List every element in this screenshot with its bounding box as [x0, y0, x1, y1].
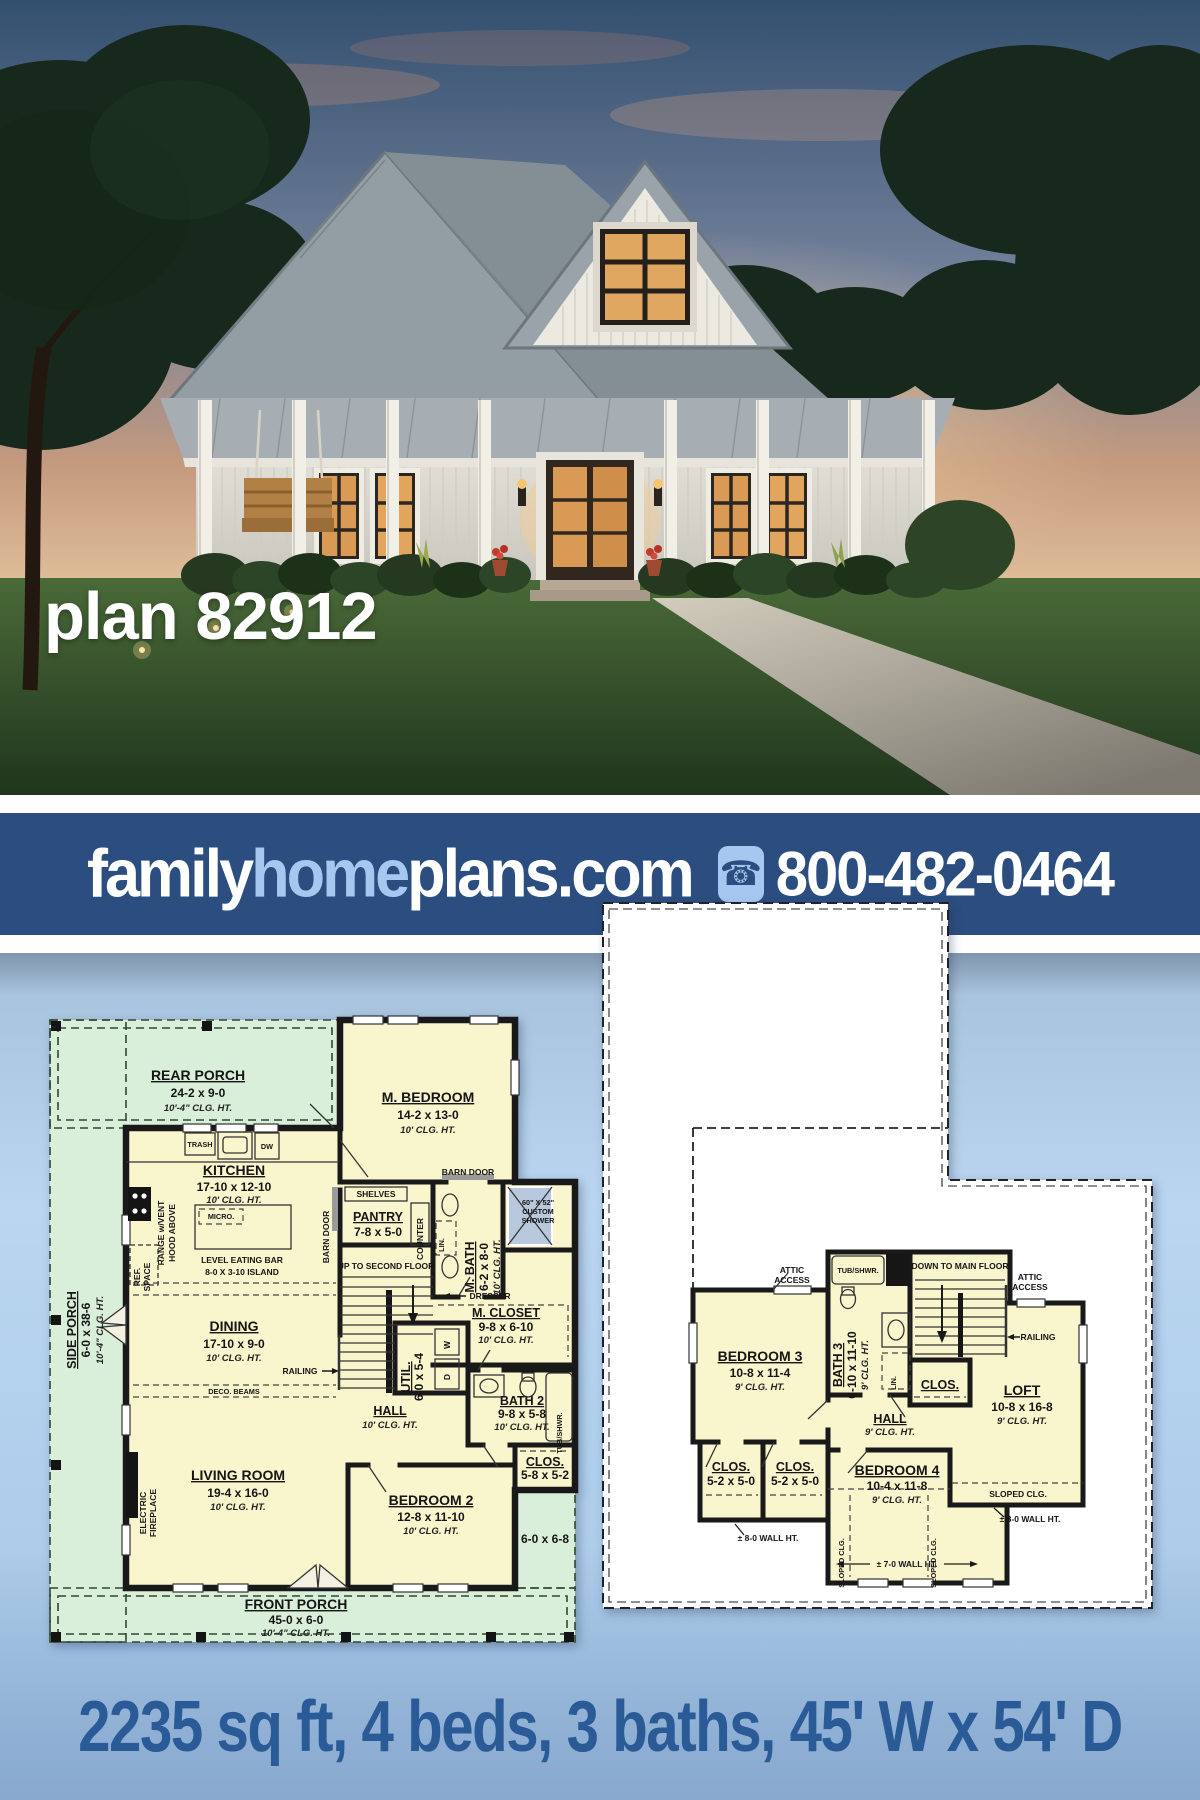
label-side-porch: SIDE PORCH 6-0 x 38-6 10'-4" CLG. HT. — [65, 1291, 106, 1369]
label-shelves: SHELVES — [356, 1189, 395, 1199]
svg-text:M. BATH: M. BATH — [463, 1241, 477, 1292]
svg-text:9' CLG. HT.: 9' CLG. HT. — [865, 1427, 915, 1438]
label-front-porch: FRONT PORCH — [245, 1596, 348, 1612]
label-trash: TRASH — [187, 1140, 212, 1149]
svg-text:6-0 x 38-6: 6-0 x 38-6 — [79, 1302, 93, 1357]
svg-text:10' CLG. HT.: 10' CLG. HT. — [400, 1125, 455, 1136]
svg-text:10-4 x 11-8: 10-4 x 11-8 — [867, 1479, 928, 1493]
svg-text:9' CLG. HT.: 9' CLG. HT. — [860, 1340, 871, 1390]
label-hall-1: HALL — [373, 1404, 407, 1418]
label-dryer: D — [442, 1374, 452, 1380]
label-hall-2: HALL — [873, 1412, 907, 1426]
svg-text:9-8 x 5-8: 9-8 x 5-8 — [498, 1407, 546, 1421]
svg-text:UTIL.: UTIL. — [399, 1361, 413, 1392]
svg-text:10'-4" CLG. HT.: 10'-4" CLG. HT. — [95, 1296, 106, 1364]
floorplan-first-floor: REAR PORCH 24-2 x 9-0 10'-4" CLG. HT. SI… — [38, 1005, 588, 1655]
label-m-bedroom: M. BEDROOM — [382, 1089, 475, 1105]
svg-text:7-8 x 5-0: 7-8 x 5-0 — [354, 1225, 402, 1239]
svg-text:6-0 x 5-4: 6-0 x 5-4 — [412, 1353, 426, 1401]
logo-family: family — [87, 836, 251, 912]
svg-text:HOOD ABOVE: HOOD ABOVE — [167, 1204, 177, 1262]
hero-photo — [0, 0, 1200, 795]
svg-text:5-2 x 5-0: 5-2 x 5-0 — [771, 1474, 819, 1488]
svg-text:10'-4" CLG. HT.: 10'-4" CLG. HT. — [164, 1103, 232, 1114]
svg-text:10' CLG. HT.: 10' CLG. HT. — [210, 1502, 265, 1513]
svg-text:24-2 x 9-0: 24-2 x 9-0 — [171, 1086, 226, 1100]
svg-text:10-8 x 16-8: 10-8 x 16-8 — [991, 1400, 1053, 1414]
label-micro: MICRO. — [208, 1212, 234, 1221]
label-bedroom2: BEDROOM 2 — [389, 1492, 474, 1508]
svg-text:ACCESS: ACCESS — [774, 1275, 810, 1285]
phone-icon: ☎ — [718, 846, 764, 902]
label-stairs-up: UP TO SECOND FLOOR — [338, 1261, 435, 1271]
label-barn-door-1: BARN DOOR — [442, 1167, 494, 1177]
svg-text:6-2 x 8-0: 6-2 x 8-0 — [477, 1243, 491, 1291]
label-clos-1: CLOS. — [526, 1455, 564, 1469]
svg-text:SPACE: SPACE — [142, 1262, 152, 1291]
label-tubshwr-2: TUB/SHWR. — [837, 1266, 878, 1275]
svg-text:9' CLG. HT.: 9' CLG. HT. — [997, 1416, 1047, 1427]
label-railing-2: RAILING — [1021, 1332, 1056, 1342]
label-pantry: PANTRY — [353, 1210, 404, 1224]
svg-text:9' CLG. HT.: 9' CLG. HT. — [735, 1382, 785, 1393]
svg-text:12-8 x 11-10: 12-8 x 11-10 — [397, 1510, 465, 1524]
svg-text:10' CLG. HT.: 10' CLG. HT. — [403, 1526, 458, 1537]
pin-page: plan 82912 familyhomeplans.com ☎ 800-482… — [0, 0, 1200, 1800]
label-attic-2: ATTIC — [1018, 1272, 1042, 1282]
label-range: RANGE w/VENTHOOD ABOVE — [156, 1200, 177, 1266]
label-deco-beams: DECO. BEAMS — [208, 1387, 260, 1396]
steps — [540, 580, 640, 590]
svg-text:10' CLG. HT.: 10' CLG. HT. — [494, 1422, 549, 1433]
svg-text:17-10 x 12-10: 17-10 x 12-10 — [197, 1180, 272, 1194]
front-door — [517, 452, 663, 580]
svg-text:45-0 x 6-0: 45-0 x 6-0 — [269, 1613, 324, 1627]
svg-text:14-2 x 13-0: 14-2 x 13-0 — [397, 1108, 459, 1122]
label-clos-stairs: CLOS. — [921, 1378, 959, 1392]
label-clos-2: CLOS. — [712, 1460, 750, 1474]
svg-text:BARN DOOR: BARN DOOR — [321, 1211, 331, 1263]
label-barn-door-2: BARN DOOR — [321, 1211, 331, 1263]
svg-text:10' CLG. HT.: 10' CLG. HT. — [206, 1195, 261, 1206]
label-attic-1: ATTIC — [780, 1265, 804, 1275]
label-dining: DINING — [210, 1318, 259, 1334]
label-m-bath: M. BATH 6-2 x 8-0 10' CLG. HT. — [463, 1239, 503, 1294]
svg-text:19-4 x 16-0: 19-4 x 16-0 — [207, 1486, 269, 1500]
svg-text:D: D — [442, 1374, 452, 1380]
svg-text:COUNTER: COUNTER — [415, 1218, 425, 1260]
label-railing-1: RAILING — [283, 1366, 318, 1376]
svg-text:6-10 x 11-10: 6-10 x 11-10 — [845, 1331, 859, 1399]
label-sloped-loft: SLOPED CLG. — [989, 1489, 1047, 1499]
svg-text:10'-4" CLG. HT.: 10'-4" CLG. HT. — [262, 1628, 330, 1639]
svg-text:RANGE w/VENT: RANGE w/VENT — [156, 1200, 166, 1266]
svg-text:LIN.: LIN. — [437, 1238, 446, 1252]
label-rear-porch: REAR PORCH — [151, 1067, 245, 1083]
label-counter: COUNTER — [415, 1218, 425, 1260]
label-bath2: BATH 2 — [500, 1394, 544, 1408]
svg-text:BATH 3: BATH 3 — [831, 1343, 845, 1387]
fireplace-box — [126, 1452, 138, 1518]
logo-home: home — [251, 836, 407, 912]
label-stairs-down: DOWN TO MAIN FLOOR — [911, 1261, 1008, 1271]
label-wall7: ± 7-0 WALL HT. — [877, 1559, 938, 1569]
label-loft: LOFT — [1004, 1382, 1041, 1398]
label-m-closet: M. CLOSET — [472, 1306, 540, 1320]
svg-text:CUSTOM: CUSTOM — [522, 1207, 554, 1216]
gable-window — [593, 222, 697, 332]
svg-text:10-8 x 11-4: 10-8 x 11-4 — [730, 1366, 791, 1380]
label-wall8-left: ± 8-0 WALL HT. — [738, 1533, 799, 1543]
svg-text:ACCESS: ACCESS — [1012, 1282, 1048, 1292]
label-washer: W — [442, 1340, 452, 1349]
svg-text:10' CLG. HT.: 10' CLG. HT. — [478, 1335, 533, 1346]
svg-text:17-10 x 9-0: 17-10 x 9-0 — [203, 1337, 265, 1351]
specs-footer: 2235 sq ft, 4 beds, 3 baths, 45' W x 54'… — [18, 1685, 1182, 1768]
label-lin-2: LIN. — [889, 1376, 898, 1390]
label-island1: LEVEL EATING BAR — [201, 1255, 283, 1265]
label-bedroom4: BEDROOM 4 — [855, 1462, 940, 1478]
label-bedroom3: BEDROOM 3 — [718, 1348, 803, 1364]
svg-text:9-8 x 6-10: 9-8 x 6-10 — [479, 1320, 534, 1334]
plan-number-overlay: plan 82912 — [44, 578, 377, 655]
floorplan-second-floor: BEDROOM 3 10-8 x 11-4 9' CLG. HT. ATTIC … — [560, 895, 1180, 1615]
svg-text:ELECTRIC: ELECTRIC — [138, 1492, 148, 1535]
label-clos-3: CLOS. — [776, 1460, 814, 1474]
svg-text:SIDE PORCH: SIDE PORCH — [65, 1291, 79, 1369]
label-dresser: DRESSER — [469, 1291, 510, 1301]
svg-text:W: W — [442, 1340, 452, 1349]
label-wall8-right: ± 8-0 WALL HT. — [1000, 1514, 1061, 1524]
label-kitchen: KITCHEN — [203, 1162, 265, 1178]
svg-text:LIN.: LIN. — [889, 1376, 898, 1390]
svg-text:10' CLG. HT.: 10' CLG. HT. — [206, 1353, 261, 1364]
svg-text:9' CLG. HT.: 9' CLG. HT. — [872, 1495, 922, 1506]
svg-text:10' CLG. HT.: 10' CLG. HT. — [492, 1239, 503, 1294]
label-lin: LIN. — [437, 1238, 446, 1252]
label-island2: 8-0 X 3-10 ISLAND — [205, 1267, 279, 1277]
svg-text:FIREPLACE: FIREPLACE — [148, 1489, 158, 1538]
label-fireplace: ELECTRICFIREPLACE — [138, 1489, 158, 1538]
label-dw: DW — [261, 1142, 273, 1151]
label-shower1: 60" X 52" — [522, 1198, 554, 1207]
label-living: LIVING ROOM — [191, 1467, 285, 1483]
svg-text:10' CLG. HT.: 10' CLG. HT. — [362, 1420, 417, 1431]
svg-text:SHOWER: SHOWER — [522, 1216, 556, 1225]
svg-text:5-2 x 5-0: 5-2 x 5-0 — [707, 1474, 755, 1488]
